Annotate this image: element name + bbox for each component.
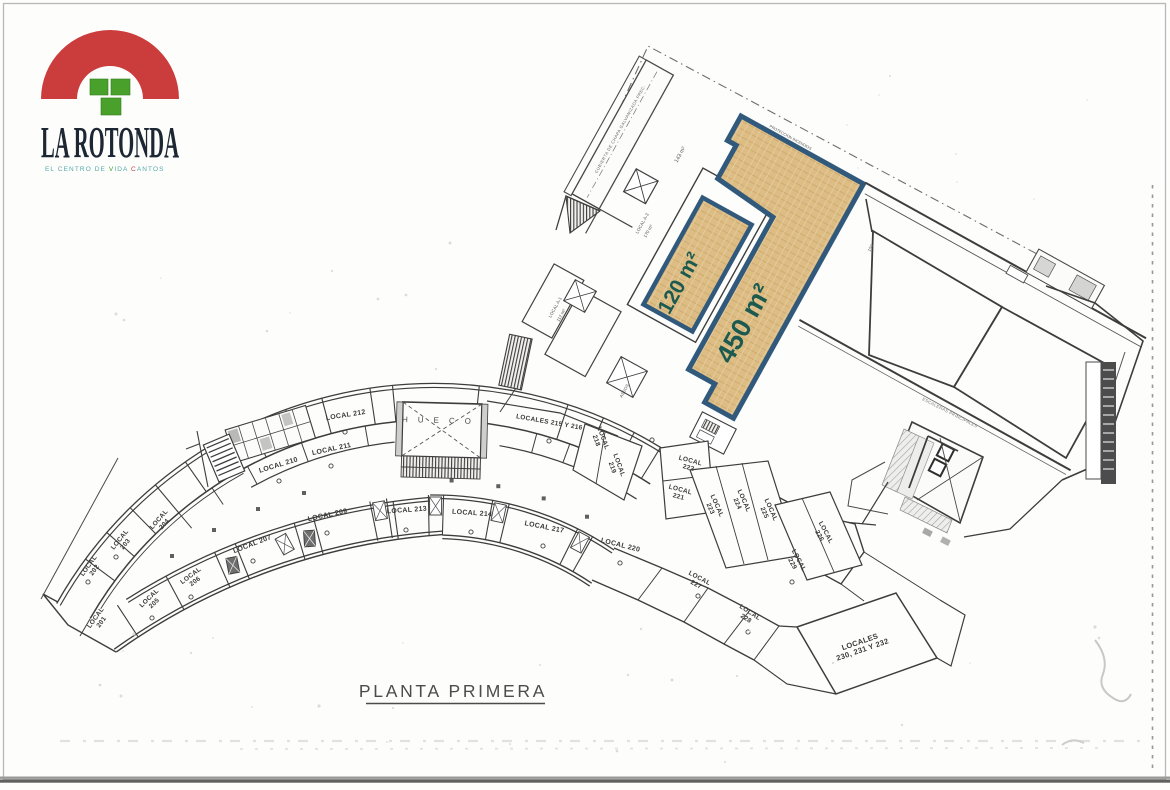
svg-text:PLANTA PRIMERA: PLANTA PRIMERA — [359, 681, 547, 701]
svg-text:EL CENTRO DE VIDA CANTOS: EL CENTRO DE VIDA CANTOS — [45, 166, 165, 173]
svg-text:LA ROTONDA: LA ROTONDA — [41, 118, 179, 167]
